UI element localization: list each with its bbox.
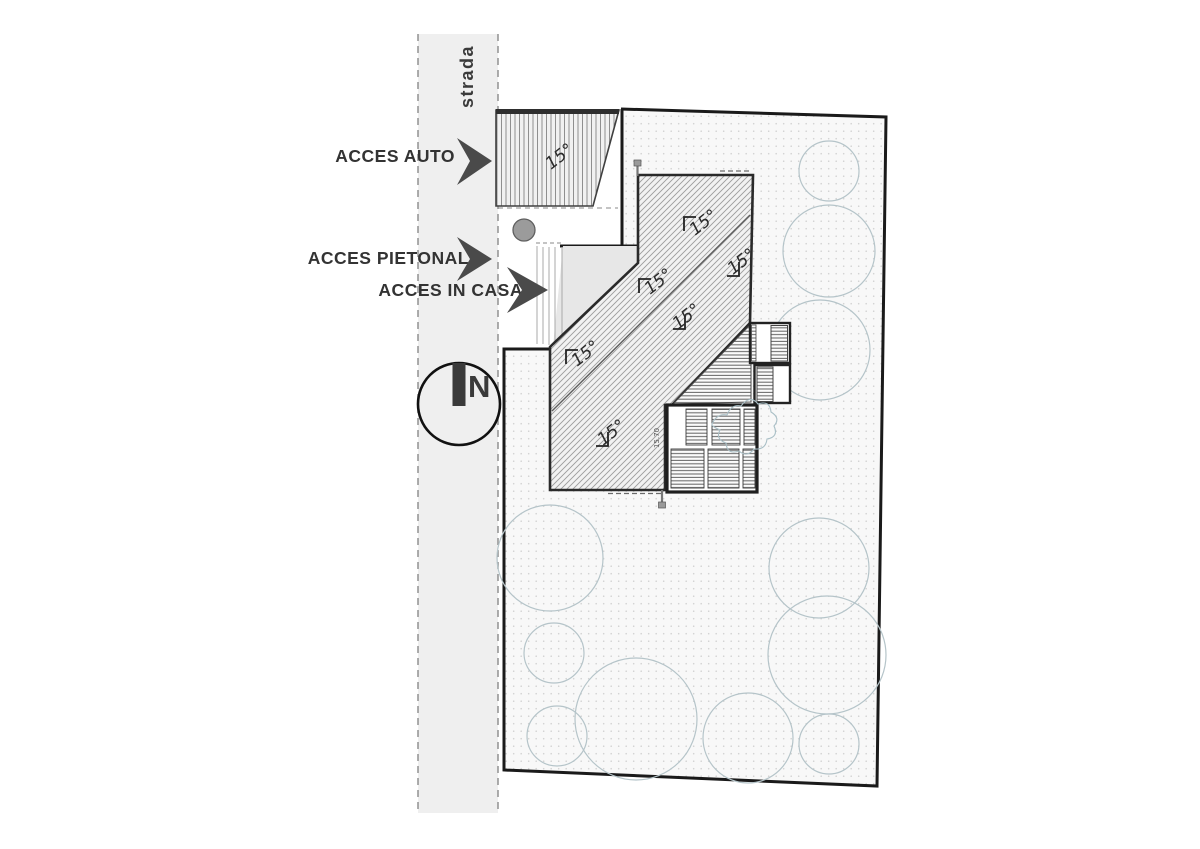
pergola-block-b bbox=[755, 365, 791, 403]
north-needle-icon bbox=[453, 363, 466, 406]
acces-pietonal-label: ACCES PIETONAL bbox=[308, 248, 469, 268]
patio-block bbox=[667, 405, 757, 492]
pergola-block-a bbox=[750, 323, 790, 363]
garage: 15° bbox=[496, 110, 619, 208]
acces-auto-label: ACCES AUTO bbox=[335, 146, 455, 166]
house-dimension-label: 15.70 bbox=[653, 428, 661, 448]
north-symbol: N bbox=[418, 363, 500, 445]
acces-in-casa-label: ACCES IN CASA bbox=[378, 280, 523, 300]
site-plan: strada 15° bbox=[0, 0, 1200, 849]
north-letter: N bbox=[468, 369, 490, 404]
tree-trunk-circle bbox=[513, 219, 535, 241]
road-label: strada bbox=[457, 45, 477, 108]
